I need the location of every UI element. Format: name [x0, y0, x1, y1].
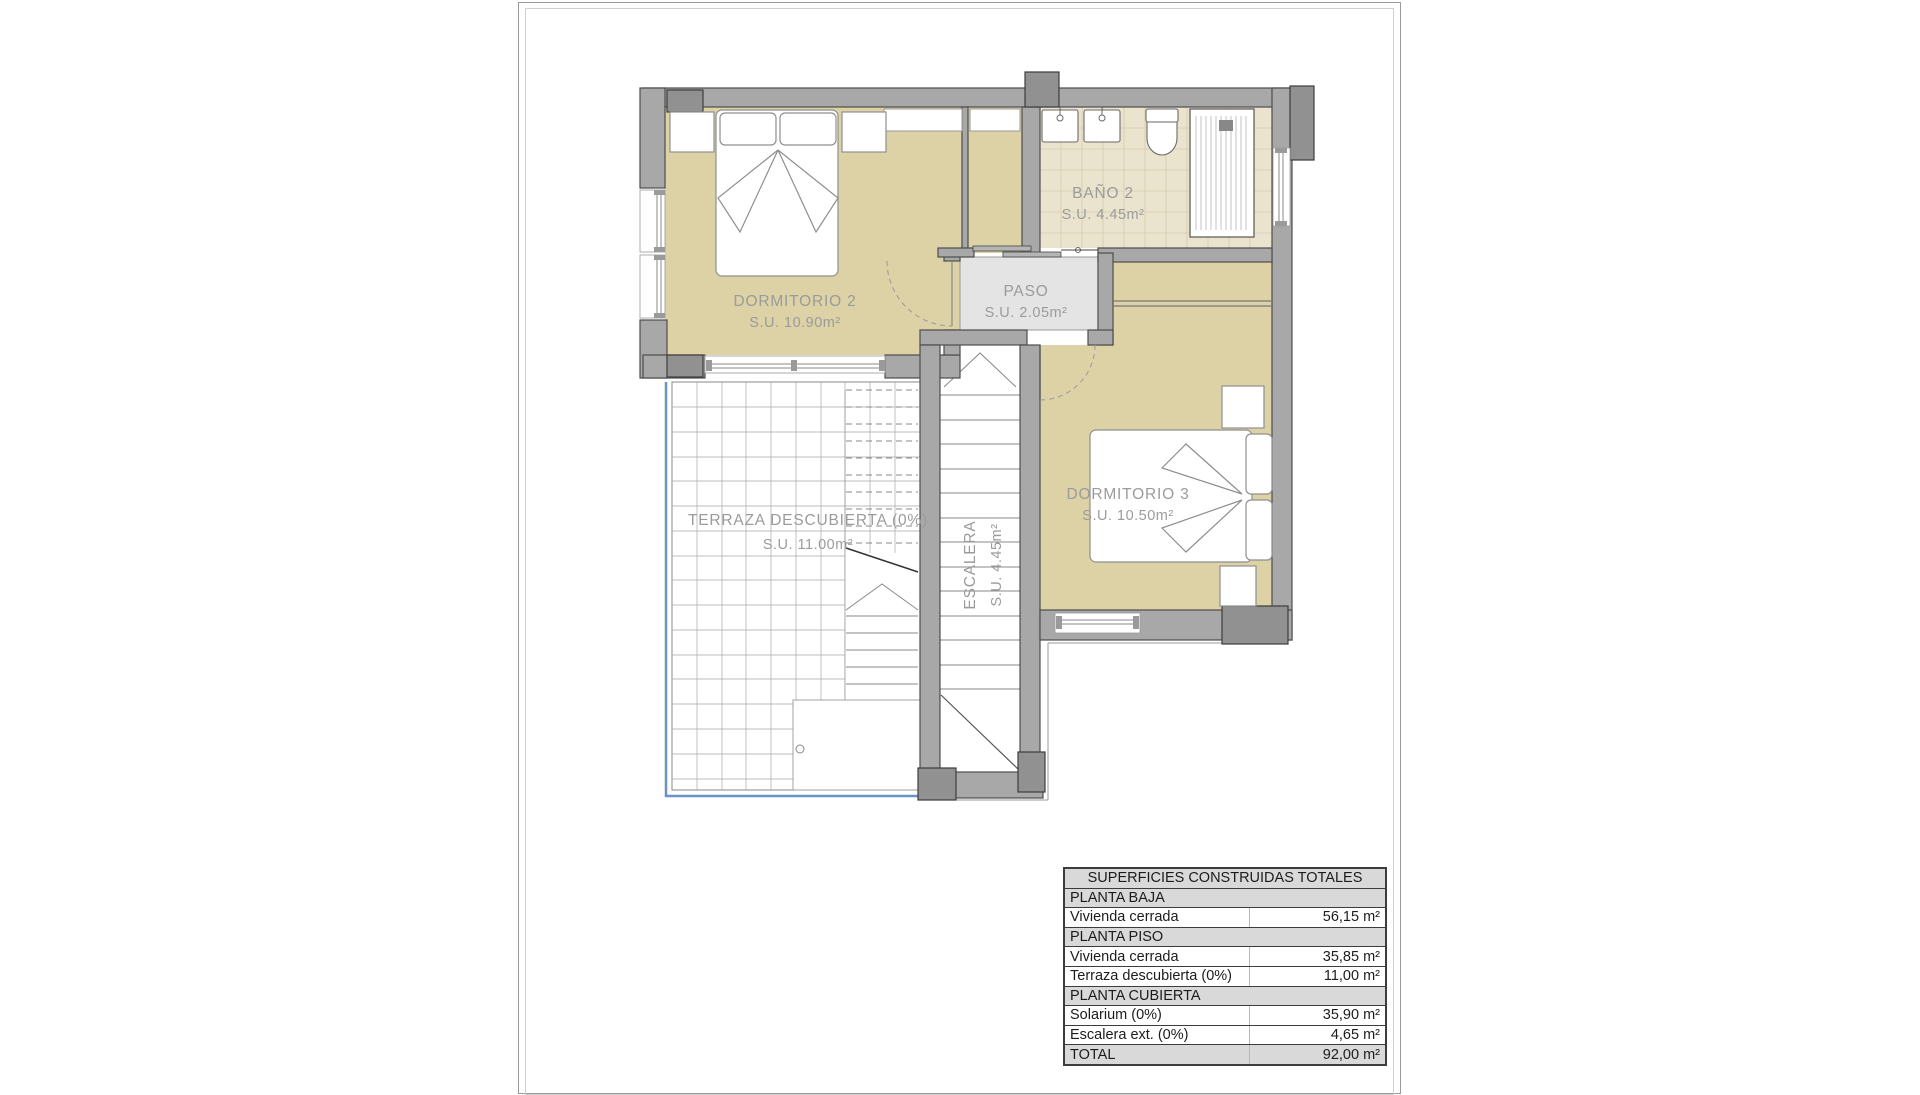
area-dormitorio3: S.U. 10.50m² [1082, 508, 1173, 524]
toilet [1146, 109, 1178, 155]
wall-paso-top [938, 248, 974, 257]
label-dormitorio2: DORMITORIO 2 [734, 293, 857, 310]
table-row: Vivienda cerrada 56,15 m² [1065, 908, 1385, 928]
window-bath-right [1273, 148, 1290, 226]
pillar-top-left [667, 90, 703, 112]
wall-paso-bottom-corner [1088, 330, 1113, 345]
wall-left-upper [640, 88, 665, 188]
pillow-top [1246, 434, 1272, 494]
section-row-planta-baja: PLANTA BAJA [1065, 889, 1385, 909]
interior-staircase [940, 345, 1020, 772]
pillar-top-middle [1025, 72, 1059, 107]
section-label: PLANTA BAJA [1065, 890, 1385, 906]
window-dorm3-bottom [1055, 613, 1140, 633]
table-title-row: SUPERFICIES CONSTRUIDAS TOTALES [1065, 869, 1385, 889]
closet-strip-top [970, 109, 1020, 131]
wall-stair-left [920, 345, 940, 772]
nightstand-bottom [1220, 566, 1256, 606]
label-escalera: ESCALERA [962, 520, 979, 609]
floor-plan: DORMITORIO 2 S.U. 10.90m² BAÑO 2 S.U. 4.… [630, 65, 1330, 810]
row-value: 35,90 m² [1249, 1006, 1385, 1025]
window-dorm2-bottom [705, 356, 885, 373]
area-bano2: S.U. 4.45m² [1062, 207, 1145, 223]
wall-stair-right [1020, 345, 1040, 772]
wall-top [643, 88, 1292, 107]
row-value: 11,00 m² [1249, 967, 1385, 986]
pillow-bottom [1246, 500, 1272, 560]
area-terraza: S.U. 11.00m² [763, 537, 853, 553]
window-left-2 [640, 255, 665, 318]
table-row: Vivienda cerrada 35,85 m² [1065, 947, 1385, 967]
pillar-stair-bottom-right [1018, 752, 1045, 792]
label-bano2: BAÑO 2 [1072, 185, 1134, 202]
pillar-left-lower [667, 355, 703, 377]
table-total-row: TOTAL 92,00 m² [1065, 1045, 1385, 1064]
faucet-1 [1057, 115, 1063, 121]
area-escalera: S.U. 4.45m² [989, 524, 1005, 607]
area-dormitorio2: S.U. 10.90m² [749, 315, 840, 331]
total-label: TOTAL [1065, 1047, 1249, 1063]
window-left-1 [640, 190, 665, 252]
row-label: Terraza descubierta (0%) [1065, 968, 1249, 984]
nightstand-left [670, 112, 714, 152]
shower-drain [1219, 120, 1233, 131]
page: { "document": { "type": "floor-plan-shee… [0, 0, 1920, 1080]
row-label: Solarium (0%) [1065, 1007, 1249, 1023]
area-paso: S.U. 2.05m² [985, 305, 1068, 321]
section-row-planta-cubierta: PLANTA CUBIERTA [1065, 987, 1385, 1007]
shower [1190, 109, 1254, 237]
section-label: PLANTA CUBIERTA [1065, 988, 1385, 1004]
pillar-stair-bottom-left [918, 768, 956, 800]
table-title: SUPERFICIES CONSTRUIDAS TOTALES [1088, 870, 1363, 886]
table-row: Solarium (0%) 35,90 m² [1065, 1006, 1385, 1026]
section-label: PLANTA PISO [1065, 929, 1385, 945]
wall-paso-bottom [920, 330, 1027, 345]
section-row-planta-piso: PLANTA PISO [1065, 928, 1385, 948]
label-paso: PASO [1003, 283, 1048, 300]
row-value: 4,65 m² [1249, 1026, 1385, 1045]
row-label: Vivienda cerrada [1065, 949, 1249, 965]
wall-strip-bath [1022, 107, 1040, 253]
wall-dorm2-strip-divider [962, 107, 968, 249]
row-label: Escalera ext. (0%) [1065, 1027, 1249, 1043]
surfaces-table: SUPERFICIES CONSTRUIDAS TOTALES PLANTA B… [1063, 867, 1387, 1066]
closet-dorm2-top [884, 109, 962, 131]
table-row: Terraza descubierta (0%) 11,00 m² [1065, 967, 1385, 987]
label-terraza: TERRAZA DESCUBIERTA (0%) [688, 512, 928, 529]
pillow-left [720, 113, 776, 145]
nightstand-right [842, 112, 886, 152]
wall-bath-bottom [1098, 248, 1272, 262]
nightstand-top [1222, 386, 1264, 428]
row-value: 35,85 m² [1249, 947, 1385, 966]
pillar-bottom-right [1222, 606, 1288, 644]
closets [884, 109, 1020, 131]
landing-post [796, 745, 804, 753]
row-label: Vivienda cerrada [1065, 909, 1249, 925]
pillar-top-right [1290, 86, 1314, 160]
row-value: 56,15 m² [1249, 908, 1385, 927]
pillow-right [780, 113, 836, 145]
faucet-2 [1099, 115, 1105, 121]
table-row: Escalera ext. (0%) 4,65 m² [1065, 1026, 1385, 1046]
total-value: 92,00 m² [1249, 1045, 1385, 1064]
label-dormitorio3: DORMITORIO 3 [1067, 486, 1190, 503]
